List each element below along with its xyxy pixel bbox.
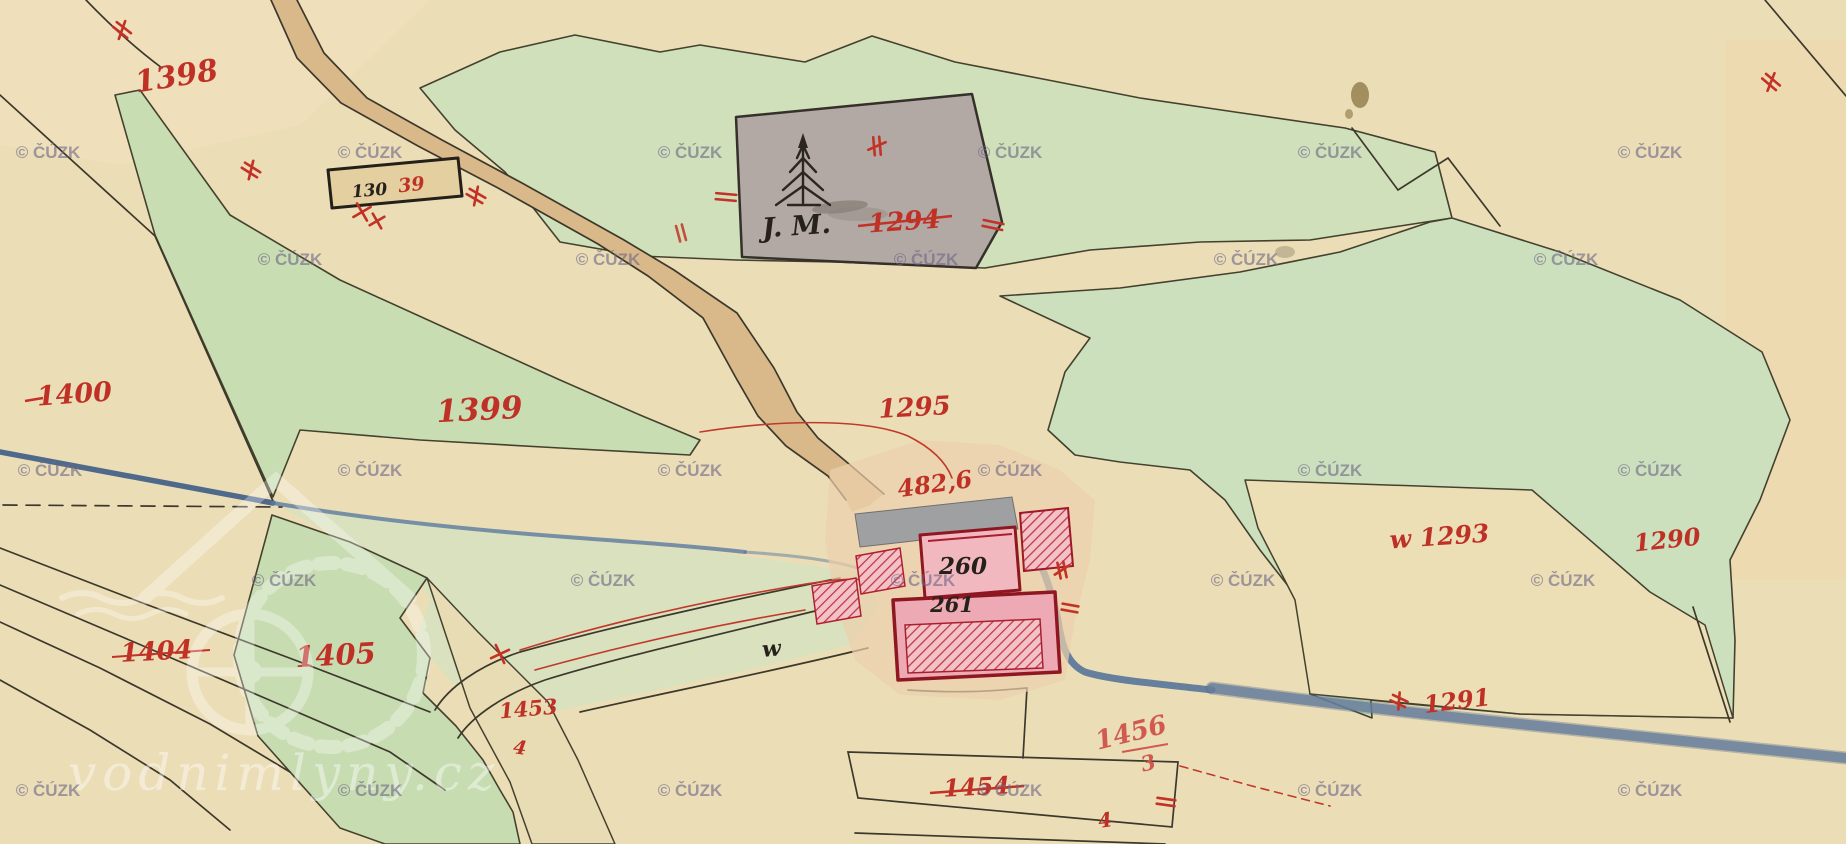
cuzk-watermark: © ČÚZK	[1214, 250, 1279, 269]
cuzk-watermark: © ČÚZK	[16, 143, 81, 162]
label-1295: 1295	[878, 391, 952, 425]
label-jm: J. M.	[756, 209, 832, 245]
label-130: 130	[351, 179, 388, 202]
cuzk-watermark: © ČÚZK	[1211, 571, 1276, 590]
cuzk-watermark: © ČÚZK	[658, 781, 723, 800]
cuzk-watermark: © ČÚZK	[978, 143, 1043, 162]
cuzk-watermark: © ČÚZK	[1298, 461, 1363, 480]
mill-building-261	[893, 592, 1060, 680]
cuzk-watermark: © ČÚZK	[658, 143, 723, 162]
hatched-annex	[1020, 508, 1073, 571]
label-1400: 1400	[36, 376, 113, 412]
label-w-script: w	[761, 635, 783, 663]
cuzk-watermark: © ČÚZK	[1534, 250, 1599, 269]
label-261: 261	[929, 592, 974, 617]
cuzk-watermark: © ČÚZK	[891, 571, 956, 590]
cuzk-watermark: © ČÚZK	[1298, 781, 1363, 800]
cuzk-watermark: © ČÚZK	[1618, 143, 1683, 162]
cuzk-watermark: © ČÚZK	[894, 250, 959, 269]
cuzk-watermark: © ČÚZK	[571, 571, 636, 590]
label-39: 39	[397, 173, 426, 198]
cuzk-watermark: © ČÚZK	[576, 250, 641, 269]
cuzk-watermark: © ČÚZK	[258, 250, 323, 269]
cuzk-watermark: © ČÚZK	[1298, 143, 1363, 162]
map-viewport[interactable]: 1398 130 39 J. M. 1294 1295 1399 1400 48…	[0, 0, 1846, 844]
cuzk-watermark: © ČÚZK	[658, 461, 723, 480]
hatched-parcel-west-2	[812, 578, 861, 624]
cuzk-watermark: © ČÚZK	[338, 781, 403, 800]
cadastral-map-canvas[interactable]: 1398 130 39 J. M. 1294 1295 1399 1400 48…	[0, 0, 1846, 844]
cuzk-watermark: © ČÚZK	[16, 781, 81, 800]
label-1453: 1453	[498, 694, 558, 724]
cuzk-watermark: © ČÚZK	[18, 461, 83, 480]
cuzk-watermark: © ČÚZK	[338, 461, 403, 480]
cuzk-watermark: © ČÚZK	[1618, 781, 1683, 800]
cuzk-watermark: © ČÚZK	[1618, 461, 1683, 480]
cuzk-watermark: © ČÚZK	[978, 781, 1043, 800]
cuzk-watermark: © ČÚZK	[978, 461, 1043, 480]
cuzk-watermark: © ČÚZK	[1531, 571, 1596, 590]
cuzk-watermark: © ČÚZK	[252, 571, 317, 590]
label-1399: 1399	[435, 390, 523, 430]
site-watermark-text: vodnimlyny.cz	[68, 744, 500, 802]
cuzk-watermark: © ČÚZK	[338, 143, 403, 162]
